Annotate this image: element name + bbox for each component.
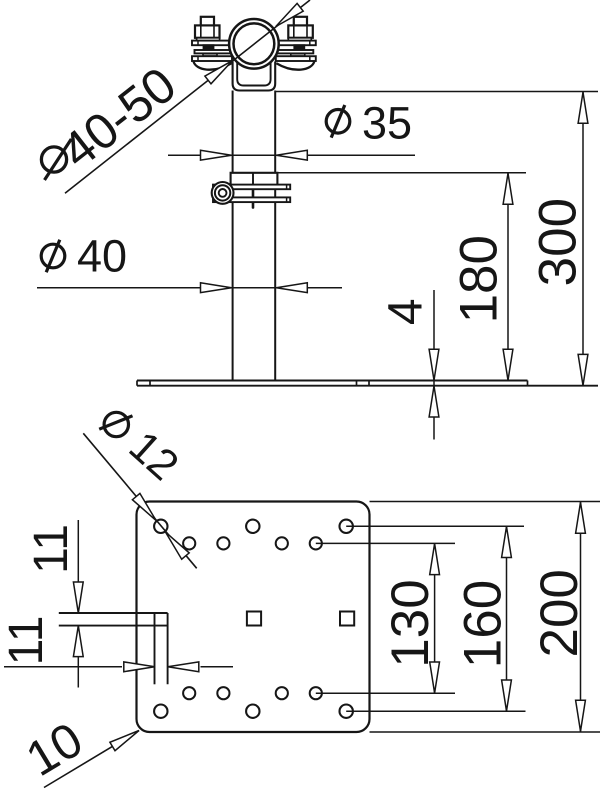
svg-text:130: 130: [381, 579, 440, 667]
svg-text:11: 11: [25, 524, 78, 574]
svg-text:10: 10: [17, 713, 92, 787]
svg-text:40-50: 40-50: [51, 56, 186, 179]
svg-text:40: 40: [77, 230, 127, 281]
svg-text:200: 200: [530, 569, 589, 657]
svg-text:11: 11: [0, 616, 53, 666]
svg-text:12: 12: [120, 422, 188, 490]
svg-text:160: 160: [454, 580, 513, 668]
svg-text:300: 300: [529, 198, 588, 286]
svg-text:4: 4: [379, 298, 432, 325]
svg-text:180: 180: [450, 235, 509, 323]
svg-text:35: 35: [362, 98, 412, 149]
